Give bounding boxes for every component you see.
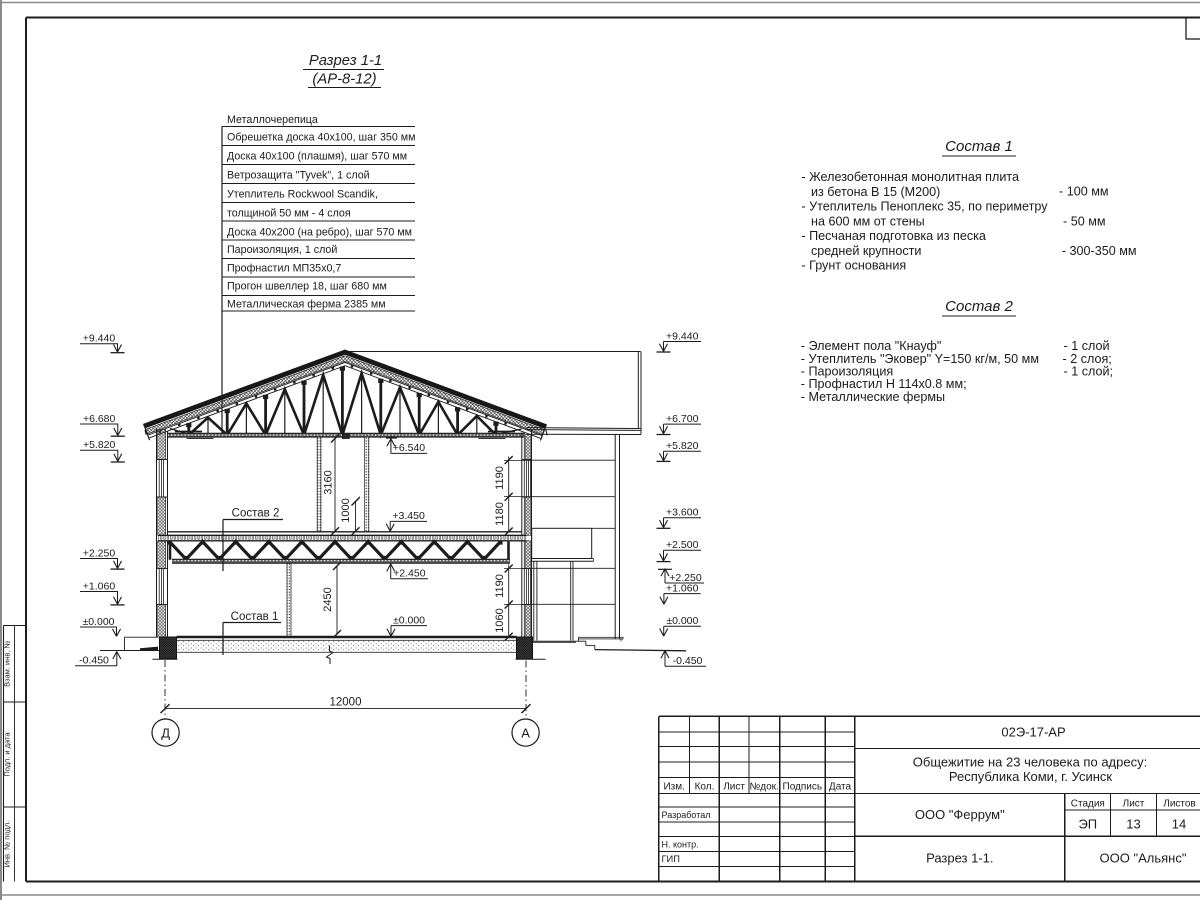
svg-text:- Металлические фермы: - Металлические фермы — [801, 390, 945, 404]
svg-text:Разрез 1-1: Разрез 1-1 — [309, 53, 382, 69]
svg-text:02Э-17-АР: 02Э-17-АР — [1001, 725, 1065, 740]
svg-text:+6.700: +6.700 — [666, 413, 699, 425]
svg-text:- Грунт основания: - Грунт основания — [801, 259, 906, 273]
svg-text:-0.450: -0.450 — [79, 655, 109, 667]
svg-text:Дата: Дата — [829, 781, 852, 792]
svg-text:1060: 1060 — [494, 608, 506, 632]
svg-text:- Утеплитель Пеноплекс 35, по: - Утеплитель Пеноплекс 35, по периметру — [801, 200, 1048, 214]
svg-text:Д: Д — [161, 725, 170, 740]
svg-text:Разработал: Разработал — [662, 810, 711, 820]
svg-text:Лист: Лист — [723, 781, 745, 792]
svg-text:Состав 2: Состав 2 — [232, 508, 280, 520]
svg-text:Общежитие на 23 человека по ад: Общежитие на 23 человека по адресу: — [913, 755, 1147, 770]
svg-text:Изм.: Изм. — [663, 781, 684, 792]
svg-text:толщиной 50 мм - 4 слоя: толщиной 50 мм - 4 слоя — [227, 208, 351, 220]
svg-text:1190: 1190 — [494, 466, 506, 490]
svg-text:ООО "Альянс": ООО "Альянс" — [1100, 851, 1187, 866]
svg-text:ООО "Феррум": ООО "Феррум" — [915, 807, 1005, 822]
svg-text:Утеплитель Rockwool Scandik,: Утеплитель Rockwool Scandik, — [227, 189, 378, 201]
svg-text:Разрез 1-1.: Разрез 1-1. — [926, 851, 993, 866]
svg-text:из бетона В 15 (М200): из бетона В 15 (М200) — [811, 185, 940, 199]
svg-text:+9.440: +9.440 — [83, 333, 116, 345]
svg-text:1180: 1180 — [494, 502, 506, 526]
svg-text:Пароизоляция, 1 слой: Пароизоляция, 1 слой — [227, 244, 337, 256]
svg-text:+2.500: +2.500 — [666, 539, 699, 551]
svg-text:Металлочерепица: Металлочерепица — [227, 114, 318, 126]
svg-text:Подп. и дата: Подп. и дата — [3, 732, 12, 777]
svg-text:13: 13 — [1126, 817, 1140, 832]
svg-text:Обрешетка доска 40х100, шаг 35: Обрешетка доска 40х100, шаг 350 мм — [227, 132, 415, 144]
svg-text:+3.450: +3.450 — [392, 510, 425, 522]
svg-text:(АР-8-12): (АР-8-12) — [312, 72, 376, 88]
svg-text:- Железобетонная монолитная п: - Железобетонная монолитная плита — [801, 170, 1019, 184]
svg-text:Металлическая ферма 2385 мм: Металлическая ферма 2385 мм — [227, 299, 386, 311]
svg-text:1000: 1000 — [340, 498, 352, 522]
svg-text:2450: 2450 — [322, 587, 334, 611]
svg-text:+2.250: +2.250 — [83, 547, 116, 559]
svg-text:средней крупности: средней крупности — [811, 244, 921, 258]
svg-text:Доска 40х100 (плашмя), шаг 570: Доска 40х100 (плашмя), шаг 570 мм — [227, 151, 407, 163]
svg-text:Стадия: Стадия — [1071, 799, 1105, 810]
svg-text:- 1 слой;: - 1 слой; — [1064, 365, 1114, 379]
svg-text:Состав 2: Состав 2 — [945, 298, 1013, 315]
svg-text:-0.450: -0.450 — [673, 655, 703, 667]
svg-text:А: А — [521, 725, 530, 740]
svg-text:- 100 мм: - 100 мм — [1059, 184, 1109, 198]
svg-text:Лист: Лист — [1123, 799, 1145, 810]
svg-text:+9.440: +9.440 — [666, 330, 699, 342]
svg-text:+1.060: +1.060 — [83, 580, 116, 592]
svg-text:14: 14 — [1172, 817, 1186, 832]
svg-text:12000: 12000 — [330, 697, 362, 709]
svg-text:Листов: Листов — [1163, 799, 1196, 810]
svg-text:- 50 мм: - 50 мм — [1063, 215, 1106, 229]
svg-text:±0.000: ±0.000 — [393, 614, 425, 626]
svg-text:№док.: №док. — [750, 781, 779, 792]
svg-text:Доска 40х200 (на ребро), шаг 5: Доска 40х200 (на ребро), шаг 570 мм — [227, 227, 412, 239]
svg-text:Инв. № подл.: Инв. № подл. — [3, 821, 12, 868]
svg-text:Состав 1: Состав 1 — [945, 138, 1013, 155]
svg-text:±0.000: ±0.000 — [82, 616, 114, 628]
svg-text:+5.820: +5.820 — [666, 440, 699, 452]
svg-text:на 600 мм от стены: на 600 мм от стены — [811, 214, 925, 228]
svg-text:Прогон швеллер 18, шаг 680 мм: Прогон швеллер 18, шаг 680 мм — [227, 281, 387, 293]
svg-text:Н. контр.: Н. контр. — [662, 839, 699, 849]
svg-text:3160: 3160 — [323, 470, 335, 494]
svg-text:1190: 1190 — [494, 574, 506, 598]
svg-text:Ветрозащита "Tyvek", 1 слой: Ветрозащита "Tyvek", 1 слой — [227, 170, 370, 182]
svg-text:Подпись: Подпись — [783, 781, 823, 792]
svg-text:Профнастил МП35х0,7: Профнастил МП35х0,7 — [227, 263, 341, 275]
svg-text:+6.680: +6.680 — [83, 413, 116, 425]
svg-text:+2.450: +2.450 — [393, 568, 426, 580]
svg-text:+6.540: +6.540 — [393, 442, 426, 454]
svg-text:+3.600: +3.600 — [666, 507, 699, 519]
svg-text:ЭП: ЭП — [1078, 817, 1097, 832]
svg-text:Состав 1: Состав 1 — [231, 611, 279, 623]
svg-text:Республика Коми, г. Усинск: Республика Коми, г. Усинск — [949, 769, 1112, 784]
svg-text:Взам. инв. №: Взам. инв. № — [3, 640, 12, 686]
svg-text:ГИП: ГИП — [662, 854, 680, 864]
svg-text:+1.060: +1.060 — [666, 582, 699, 594]
svg-text:+5.820: +5.820 — [83, 439, 116, 451]
svg-text:- Песчаная подготовка из песка: - Песчаная подготовка из песка — [801, 229, 986, 243]
svg-text:Кол.: Кол. — [695, 781, 715, 792]
svg-text:±0.000: ±0.000 — [666, 615, 698, 627]
svg-text:- 300-350 мм: - 300-350 мм — [1062, 244, 1137, 258]
